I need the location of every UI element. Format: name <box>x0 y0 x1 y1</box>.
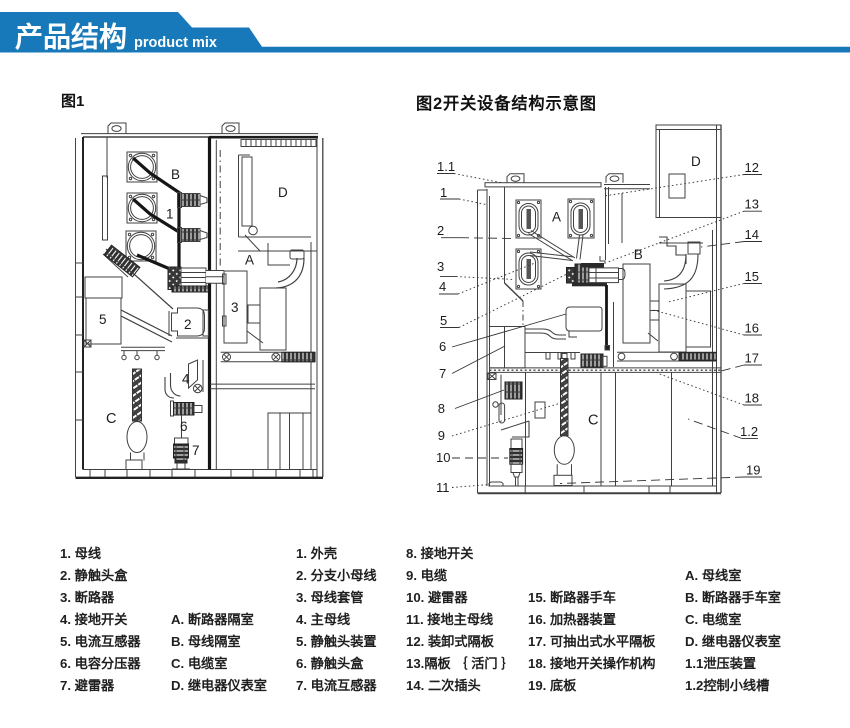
svg-text:1: 1 <box>166 207 174 222</box>
svg-text:3: 3 <box>437 259 444 274</box>
svg-text:15: 15 <box>745 269 759 284</box>
svg-text:C: C <box>106 411 116 427</box>
svg-text:7: 7 <box>192 443 200 458</box>
svg-text:B: B <box>171 167 180 182</box>
svg-text:1.1: 1.1 <box>437 159 455 174</box>
svg-text:5: 5 <box>99 312 107 327</box>
svg-text:1.2: 1.2 <box>740 424 758 439</box>
svg-text:2: 2 <box>437 223 444 238</box>
svg-text:19: 19 <box>746 463 760 478</box>
svg-text:4: 4 <box>182 372 190 387</box>
svg-text:D: D <box>278 185 288 200</box>
svg-text:13: 13 <box>745 197 759 212</box>
svg-text:5: 5 <box>440 313 447 328</box>
svg-text:6: 6 <box>180 419 188 434</box>
svg-text:A: A <box>245 253 254 268</box>
svg-text:D: D <box>691 154 701 169</box>
svg-text:3: 3 <box>231 300 239 315</box>
svg-text:6: 6 <box>439 339 446 354</box>
svg-text:18: 18 <box>745 391 759 406</box>
svg-text:4: 4 <box>439 279 446 294</box>
svg-text:8: 8 <box>438 401 445 416</box>
svg-text:2: 2 <box>184 317 192 332</box>
svg-text:12: 12 <box>745 160 759 175</box>
svg-text:16: 16 <box>745 321 759 336</box>
svg-text:7: 7 <box>439 366 446 381</box>
svg-text:9: 9 <box>438 428 445 443</box>
svg-text:17: 17 <box>745 351 759 366</box>
svg-text:11: 11 <box>436 480 450 495</box>
svg-text:C: C <box>588 413 598 429</box>
svg-text:14: 14 <box>745 227 759 242</box>
svg-text:10: 10 <box>436 450 450 465</box>
svg-text:1: 1 <box>440 185 447 200</box>
svg-text:A: A <box>552 210 561 225</box>
